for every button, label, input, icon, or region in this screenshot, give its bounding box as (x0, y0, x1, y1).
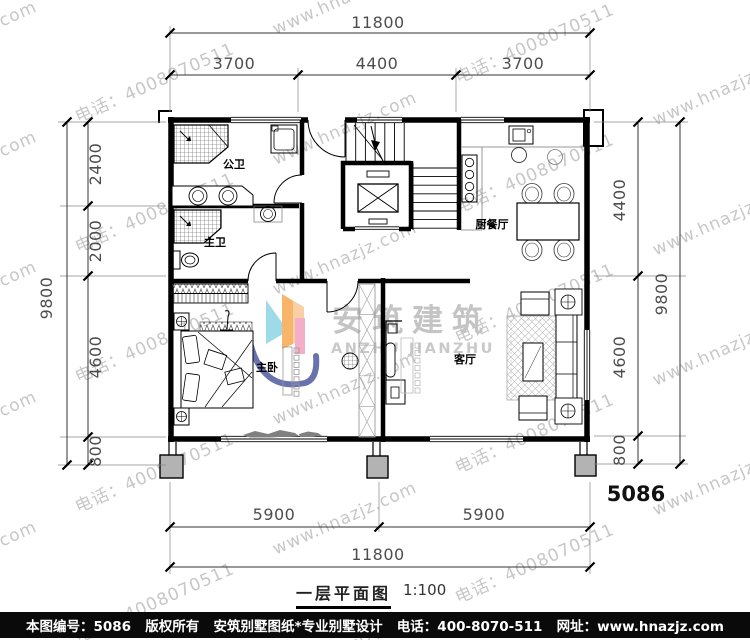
dim-left-total: 9800 (37, 277, 56, 320)
dimension-texts: 11800 3700 4400 3700 9800 2400 2000 4600… (37, 13, 671, 564)
dim-left-seg-4: 800 (86, 435, 105, 467)
dim-right-seg-1: 4400 (610, 179, 629, 222)
footer-phone: 电话：400-8070-511 (397, 615, 543, 635)
footer-bar: 本图编号：5086 版权所有 安筑别墅图纸*专业别墅设计 电话：400-8070… (0, 612, 750, 638)
plan-number: 5086 (606, 482, 666, 506)
dim-right-seg-3: 800 (610, 434, 629, 466)
dim-bottom-seg-2: 5900 (463, 505, 506, 524)
dim-left-seg-2: 2000 (86, 220, 105, 263)
footer-website: 网址：www.hnazjz.com (557, 615, 724, 635)
dining-set (517, 184, 579, 261)
drawing-scale: 1:100 (403, 581, 446, 599)
dim-bottom-total: 11800 (351, 545, 404, 564)
floor-plan-drawing: 安筑建筑 ANZHU JIANZHU (0, 0, 750, 640)
room-label-kitchen-dining: 厨餐厅 (476, 217, 509, 231)
window-shades (243, 430, 322, 438)
footer-brand: 安筑别墅图纸*专业别墅设计 (214, 615, 383, 635)
stairs (346, 123, 459, 230)
room-label-living-room: 客厅 (453, 352, 476, 366)
floor-plan-sheet: www.hnazjz.com电话：4008070511www.hnazjz.co… (0, 0, 750, 640)
room-label-master-bath: 主卫 (204, 235, 226, 249)
elevator (341, 161, 411, 229)
dim-left-seg-1: 2400 (86, 143, 105, 186)
drawing-title-block: 一层平面图 1:100 (296, 580, 446, 609)
dim-top-total: 11800 (351, 13, 404, 32)
dim-left-seg-3: 4600 (86, 336, 105, 379)
room-label-guest-bath: 公卫 (223, 158, 245, 171)
dimension-extension-lines (58, 26, 688, 574)
dim-right-total: 9800 (652, 273, 671, 316)
bathroom-fixtures (172, 125, 297, 269)
dim-top-seg-1: 3700 (213, 54, 256, 73)
dim-right-seg-2: 4600 (610, 336, 629, 379)
dim-top-seg-3: 3700 (502, 54, 545, 73)
room-label-master-bedroom: 主卧 (256, 360, 278, 374)
stair-direction-arrow-icon (371, 140, 380, 151)
bedroom-set (172, 284, 299, 425)
footer-copyright: 版权所有 (145, 615, 199, 635)
dim-bottom-seg-1: 5900 (253, 505, 296, 524)
dim-top-seg-2: 4400 (356, 54, 399, 73)
drawing-title: 一层平面图 (296, 580, 391, 609)
logo-cn-text: 安筑建筑 (332, 303, 492, 339)
footer-serial: 本图编号：5086 (26, 615, 131, 635)
columns (160, 442, 596, 478)
